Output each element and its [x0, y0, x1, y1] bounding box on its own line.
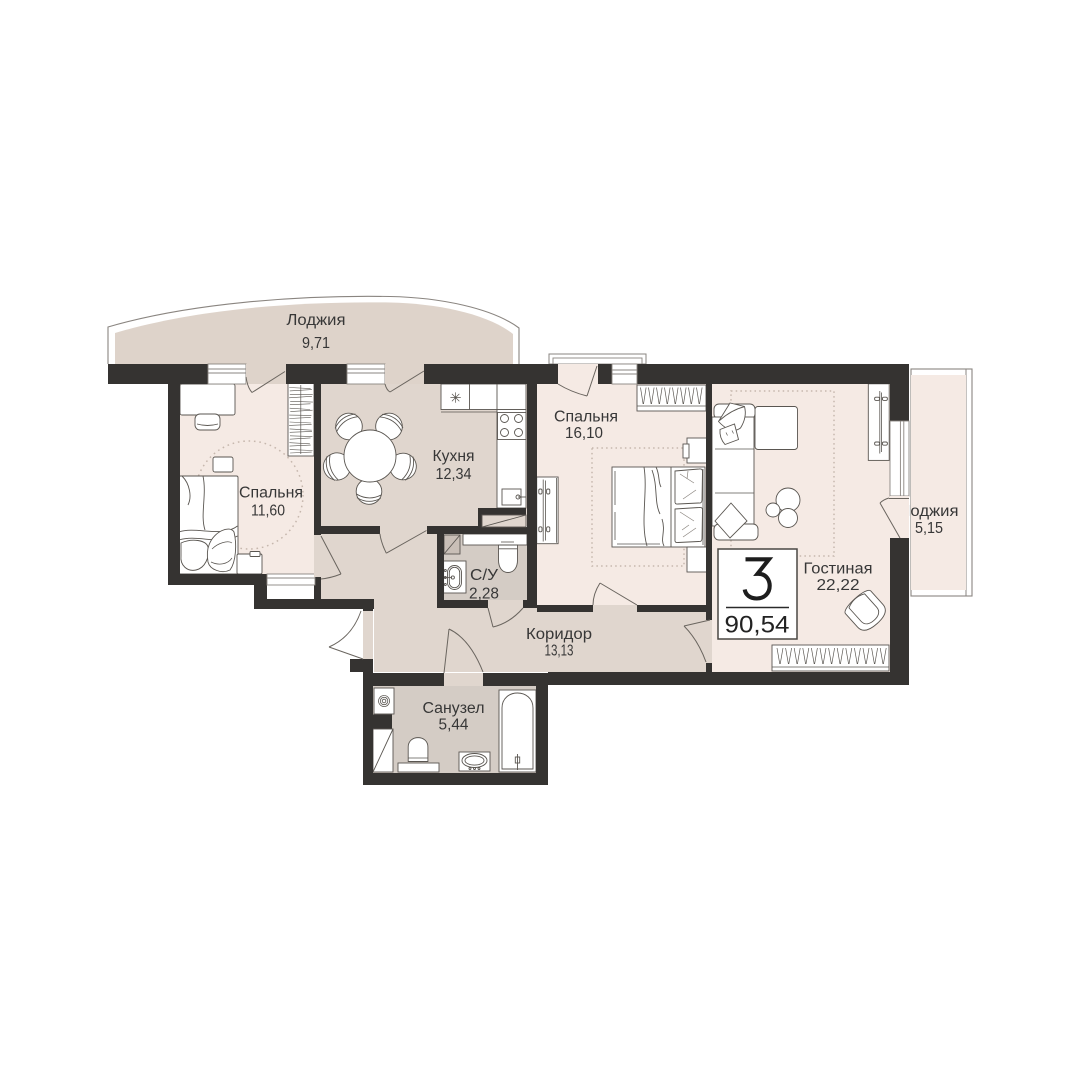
svg-text:90,54: 90,54 — [725, 612, 790, 639]
svg-text:Коридор: Коридор — [526, 626, 592, 643]
svg-text:11,60: 11,60 — [251, 503, 285, 520]
svg-text:Спальня: Спальня — [554, 409, 618, 426]
svg-text:5,15: 5,15 — [915, 520, 943, 537]
svg-text:16,10: 16,10 — [565, 425, 603, 442]
svg-text:9,71: 9,71 — [302, 335, 330, 352]
svg-text:13,13: 13,13 — [545, 643, 574, 660]
svg-text:Санузел: Санузел — [423, 700, 485, 717]
svg-text:2,28: 2,28 — [469, 586, 499, 603]
svg-text:С/У: С/У — [470, 567, 498, 584]
svg-text:Кухня: Кухня — [433, 448, 475, 465]
svg-text:5,44: 5,44 — [439, 717, 469, 734]
svg-text:Спальня: Спальня — [239, 485, 303, 502]
svg-text:22,22: 22,22 — [817, 577, 860, 594]
svg-text:Гостиная: Гостиная — [804, 561, 873, 578]
svg-text:12,34: 12,34 — [436, 466, 472, 483]
svg-text:Лоджия: Лоджия — [287, 312, 346, 329]
